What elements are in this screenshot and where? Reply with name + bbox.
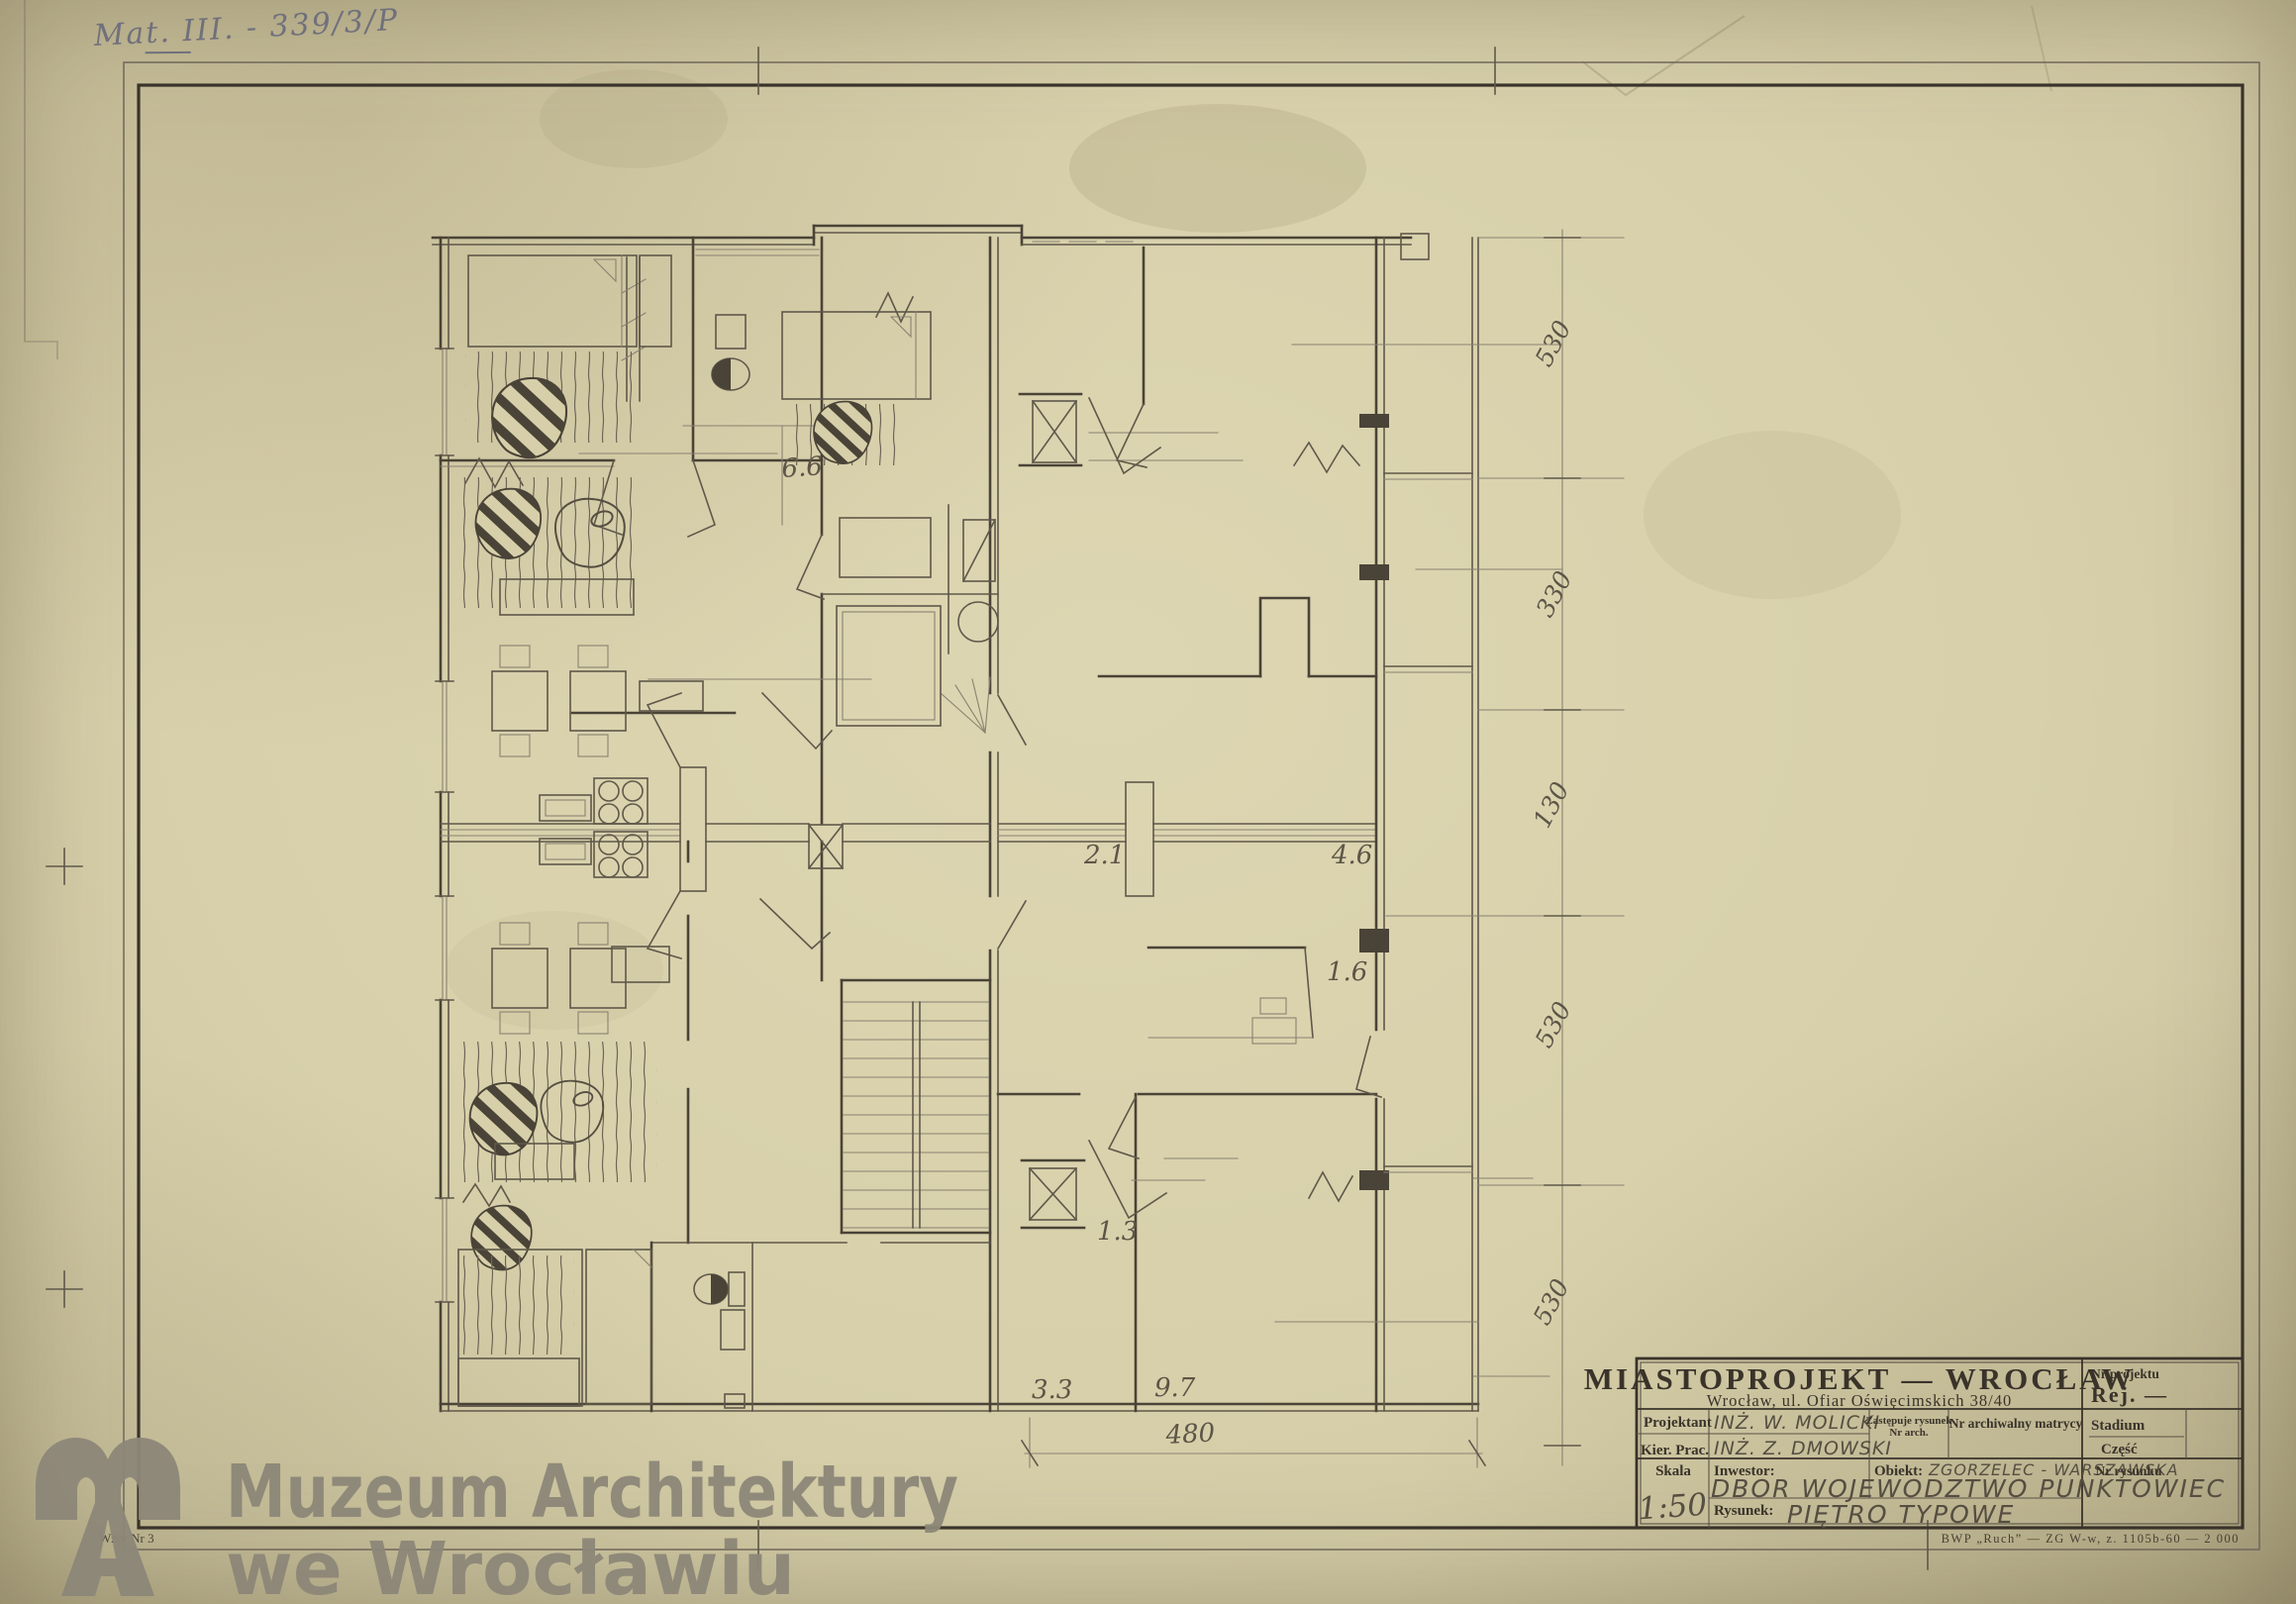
nr-archiwalny-label: Nr archiwalny matrycy xyxy=(1949,1416,2083,1431)
drawing-scan: 530 330 130 530 530 480 6.6 2.1 4.6 1.6 … xyxy=(0,0,2296,1604)
registration-cross-icon xyxy=(47,849,82,1307)
room-label-16: 1.6 xyxy=(1327,957,1367,987)
room-label-13: 1.3 xyxy=(1097,1217,1138,1247)
projektant-value: INŻ. W. MOLICKI xyxy=(1714,1411,1880,1434)
kier-prac-label: Kier. Prac. xyxy=(1641,1443,1709,1458)
skala-value: 1:50 xyxy=(1637,1487,1708,1528)
nr-projektu-value: Rej. — xyxy=(2091,1382,2168,1407)
dim-bottom-480: 480 xyxy=(1164,1418,1216,1451)
obiekt-label: Obiekt: xyxy=(1874,1463,1923,1479)
watermark-line2: we Wrocławiu xyxy=(226,1527,795,1604)
museum-watermark: Muzeum Architektury we Wrocławiu xyxy=(36,1438,958,1604)
rysunek-value: PIĘTRO TYPOWE xyxy=(1787,1500,2015,1529)
stadium-label: Stadium xyxy=(2091,1418,2146,1434)
dim-right-3: 130 xyxy=(1528,777,1575,833)
projektant-label: Projektant xyxy=(1644,1415,1712,1431)
rysunek-label: Rysunek: xyxy=(1714,1503,1773,1519)
skala-label: Skala xyxy=(1655,1463,1691,1479)
nr-projektu-label: Nr projektu xyxy=(2091,1366,2159,1381)
scanned-drawing-sheet: 530 330 130 530 530 480 6.6 2.1 4.6 1.6 … xyxy=(0,0,2296,1604)
zastepuje-label-line1: Zastępuje rysunek xyxy=(1865,1415,1952,1427)
watermark-line1: Muzeum Architektury xyxy=(226,1450,958,1535)
paper-texture xyxy=(25,0,2051,1030)
nr-rysunku-label: Nr rysunku xyxy=(2096,1463,2162,1478)
dimension-chain-right: 530 330 130 530 530 xyxy=(1275,230,1624,1465)
staircase xyxy=(844,1002,988,1228)
room-label-97: 9.7 xyxy=(1154,1373,1196,1403)
room-label-46: 4.6 xyxy=(1331,841,1372,870)
dim-right-1: 530 xyxy=(1530,316,1577,371)
dim-right-2: 330 xyxy=(1531,566,1578,622)
dim-right-5: 530 xyxy=(1528,1274,1575,1330)
company-address: Wrocław, ul. Ofiar Oświęcimskich 38/40 xyxy=(1707,1391,2012,1410)
kier-prac-value: INŻ. Z. DMOWSKI xyxy=(1714,1437,1892,1459)
dim-right-4: 530 xyxy=(1530,997,1577,1053)
zastepuje-label-line2: Nr arch. xyxy=(1889,1427,1929,1439)
room-label-21: 2.1 xyxy=(1083,841,1125,870)
print-credit: BWP „Ruch” — ZG W-w, z. 1105b-60 — 2 000 xyxy=(1942,1532,2240,1546)
ventilation-shafts xyxy=(809,401,1084,1228)
archive-annotation: Mat. III. - 339/3/P xyxy=(92,3,400,57)
room-label-66: 6.6 xyxy=(780,451,823,484)
archive-number: Mat. III. - 339/3/P xyxy=(92,3,400,53)
room-label-33: 3.3 xyxy=(1032,1375,1072,1405)
czesc-label: Część xyxy=(2101,1442,2138,1457)
muzeum-architektury-logo-icon xyxy=(36,1438,180,1596)
title-block: MIASTOPROJEKT — WROCŁAW Wrocław, ul. Ofi… xyxy=(1584,1358,2243,1529)
dimension-bottom: 480 xyxy=(1022,1418,1485,1467)
